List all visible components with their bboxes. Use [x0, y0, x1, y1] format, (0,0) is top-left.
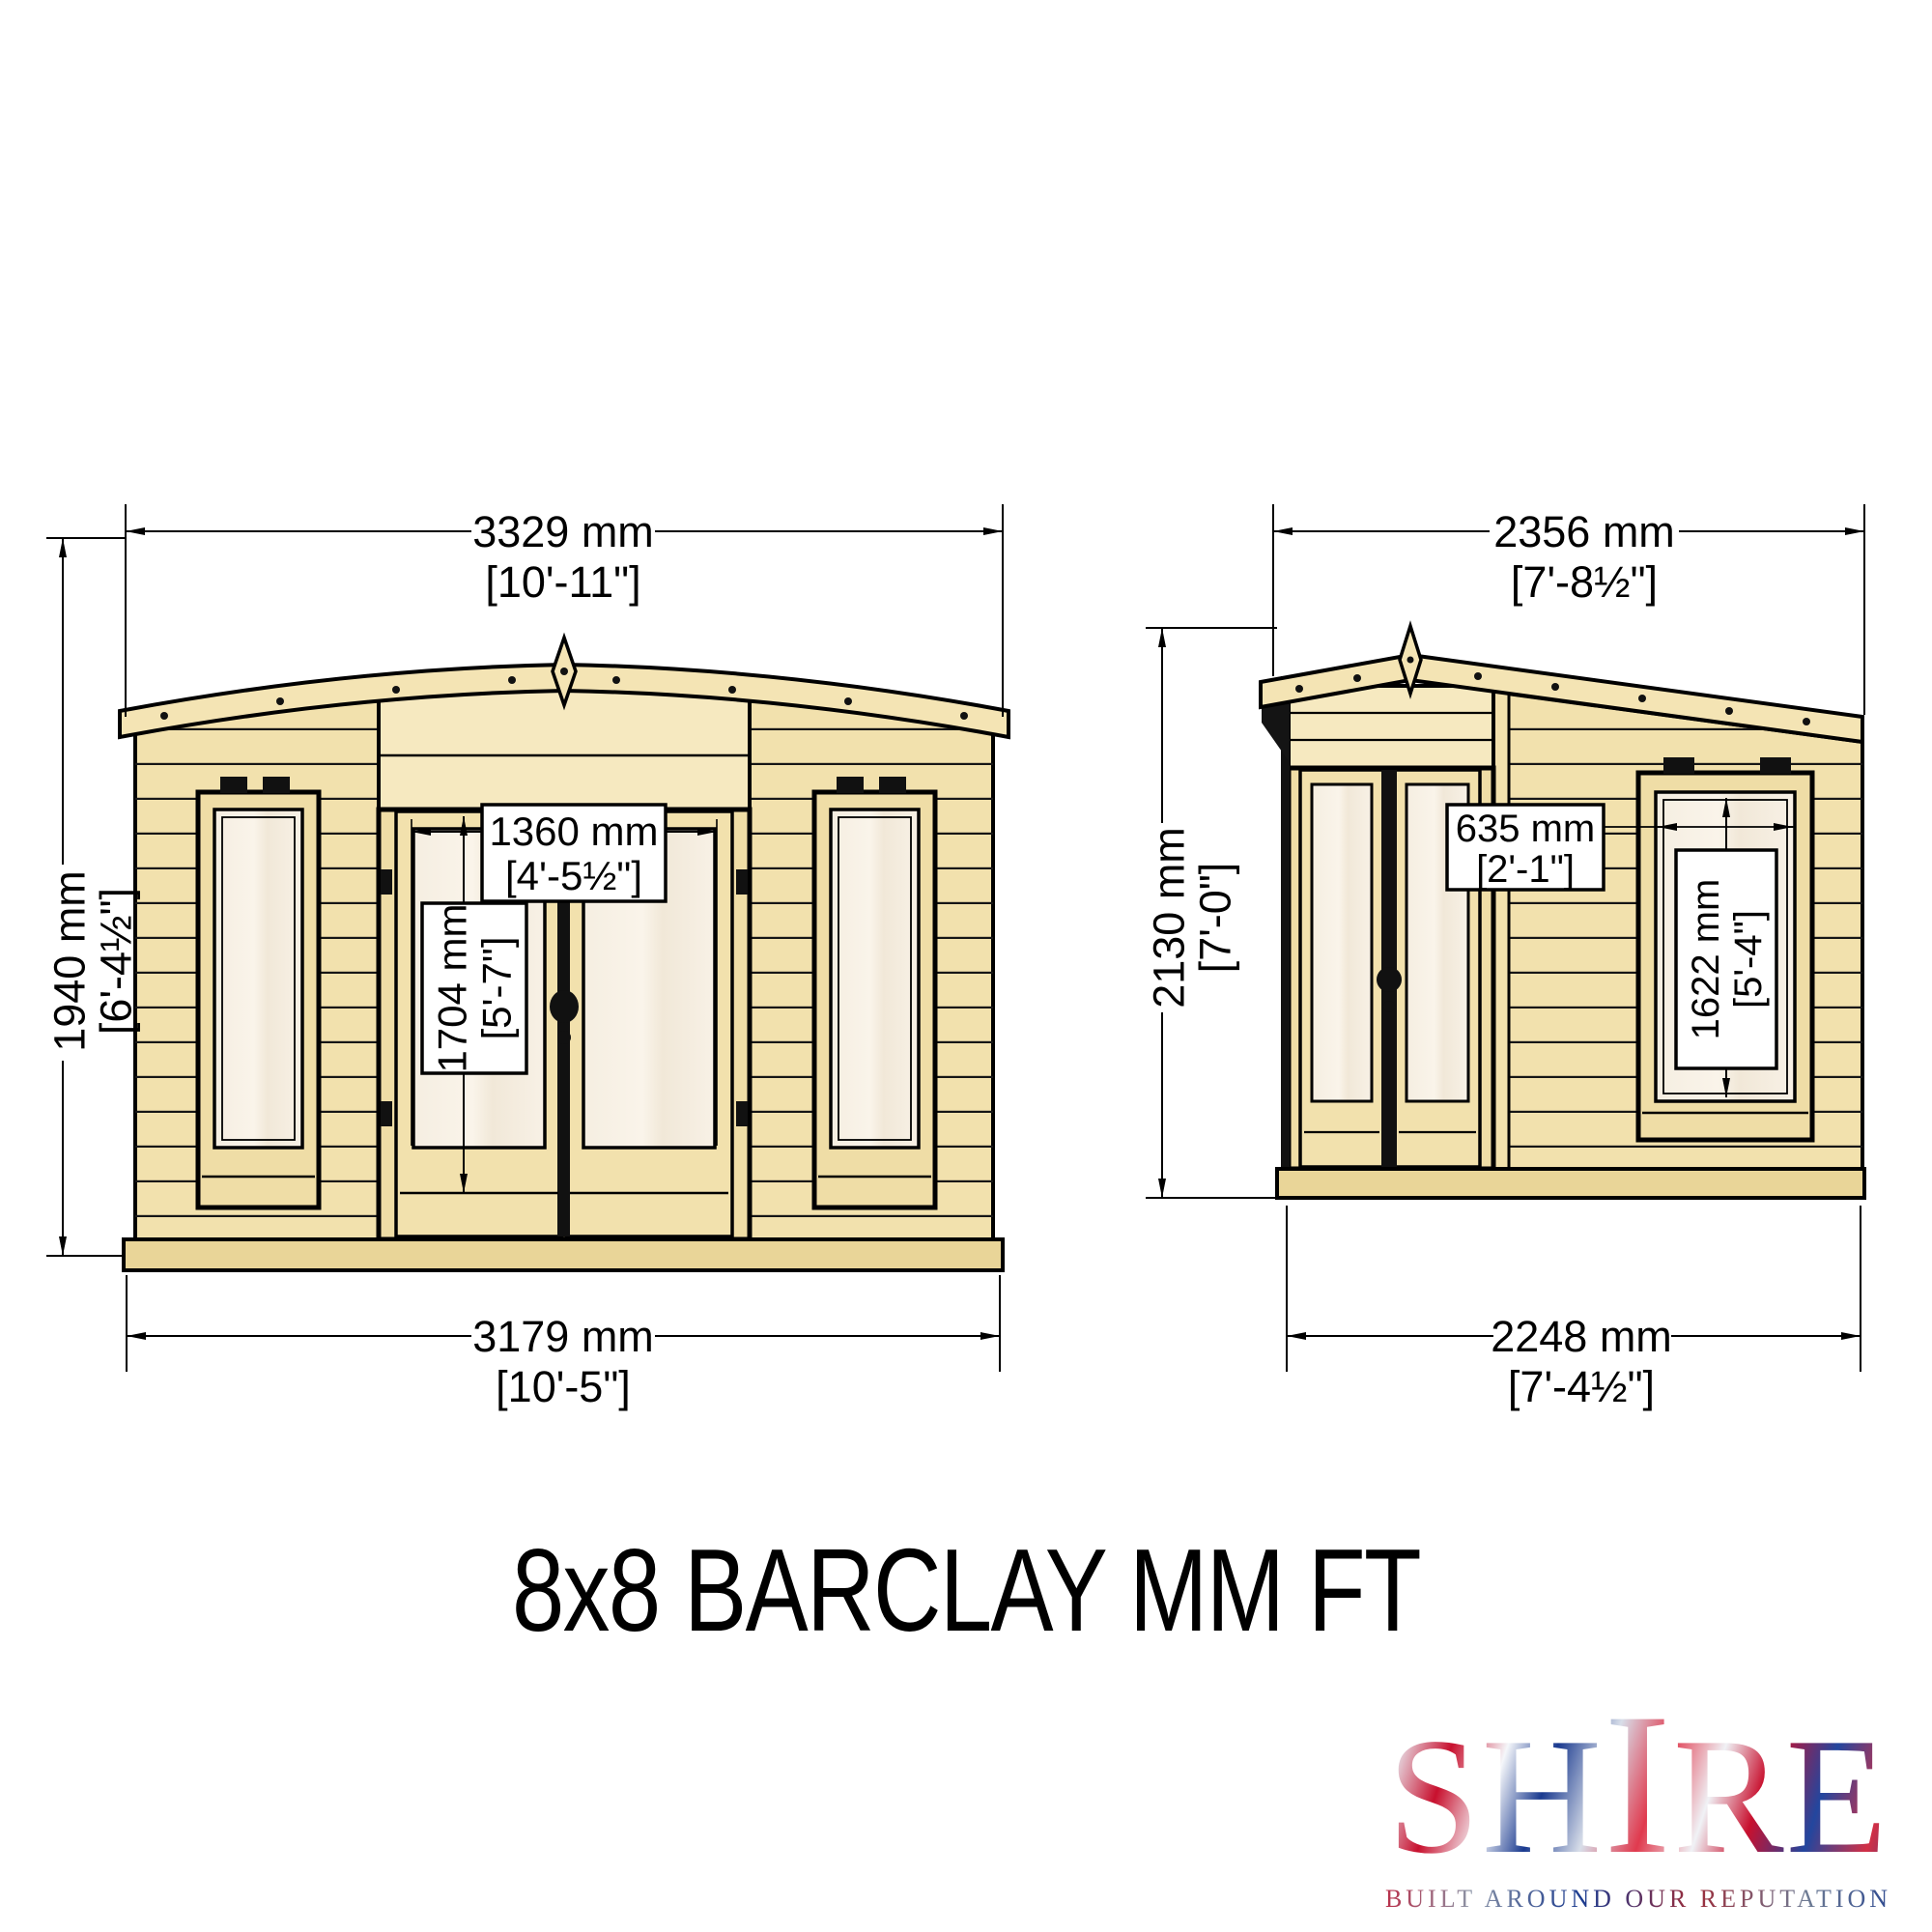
side-door-bay [1281, 676, 1493, 1169]
side-base-width-dimension: 2248 mm [7'-4½"] [1287, 1206, 1861, 1411]
dimension-label: [10'-5"] [496, 1362, 631, 1411]
front-left-window [198, 777, 319, 1207]
dimension-label: [4'-5½"] [505, 853, 642, 898]
dimension-label: [7'-0"] [1191, 863, 1240, 974]
front-right-window [814, 777, 935, 1207]
dimension-label: [7'-4½"] [1508, 1362, 1655, 1411]
dimension-label: [7'-8½"] [1511, 557, 1658, 607]
dimension-label: 1704 mm [430, 903, 475, 1072]
shire-logo-wordmark: SHIRE [1358, 1689, 1918, 1881]
door-hinge-icon [736, 869, 748, 895]
dimension-label: 1940 mm [45, 870, 95, 1052]
front-base-width-dimension: 3179 mm [10'-5"] [127, 1275, 1000, 1411]
logo-letter-tall-i: I [1604, 1672, 1673, 1896]
dimension-label: [6'-4½"] [92, 888, 141, 1035]
front-elevation-view: 3329 mm [10'-11"] 1940 mm [6'-4½"] 1360 … [45, 504, 1009, 1411]
dimension-label: 3179 mm [472, 1312, 654, 1361]
dimension-label: 2130 mm [1145, 827, 1194, 1009]
product-title: 8x8 BARCLAY MM FT [512, 1522, 1420, 1658]
front-floor-base [124, 1239, 1003, 1270]
shire-logo-tagline: BUILT AROUND OUR REPUTATION [1358, 1885, 1918, 1914]
shire-logo: SHIRE BUILT AROUND OUR REPUTATION [1358, 1689, 1918, 1914]
dimension-label: [10'-11"] [485, 557, 640, 607]
door-glazing-left [1312, 784, 1372, 1101]
window-hinge-icon [220, 777, 247, 793]
door-handle-icon [1377, 967, 1402, 992]
dimension-label: [5'-4"] [1727, 910, 1770, 1009]
logo-letters: RE [1673, 1705, 1889, 1889]
technical-drawing-page: 3329 mm [10'-11"] 1940 mm [6'-4½"] 1360 … [0, 0, 1932, 1932]
side-elevation-view: 2356 mm [7'-8½"] 2130 mm [7'-0"] 635 mm … [1145, 504, 1865, 1411]
dimension-label: 3329 mm [472, 507, 654, 556]
door-hinge-icon [736, 1101, 748, 1126]
dimension-label: 2248 mm [1491, 1312, 1672, 1361]
dimension-label: [5'-7"] [474, 937, 520, 1040]
window-hinge-icon [1760, 757, 1791, 774]
door-handle-icon [550, 990, 579, 1023]
door-hinge-icon [381, 1101, 392, 1126]
window-hinge-icon [837, 777, 864, 793]
logo-letters: SH [1387, 1705, 1604, 1889]
dimension-label: 1360 mm [489, 809, 658, 854]
window-hinge-icon [879, 777, 906, 793]
dimension-label: [2'-1"] [1476, 848, 1575, 891]
dimension-label: 1622 mm [1685, 879, 1727, 1040]
dimension-label: 635 mm [1456, 808, 1596, 850]
door-hinge-icon [381, 869, 392, 895]
dimension-label: 2356 mm [1493, 507, 1675, 556]
side-floor-base [1277, 1169, 1864, 1198]
window-hinge-icon [263, 777, 290, 793]
window-hinge-icon [1663, 757, 1694, 774]
side-height-dimension: 2130 mm [7'-0"] [1145, 628, 1280, 1198]
